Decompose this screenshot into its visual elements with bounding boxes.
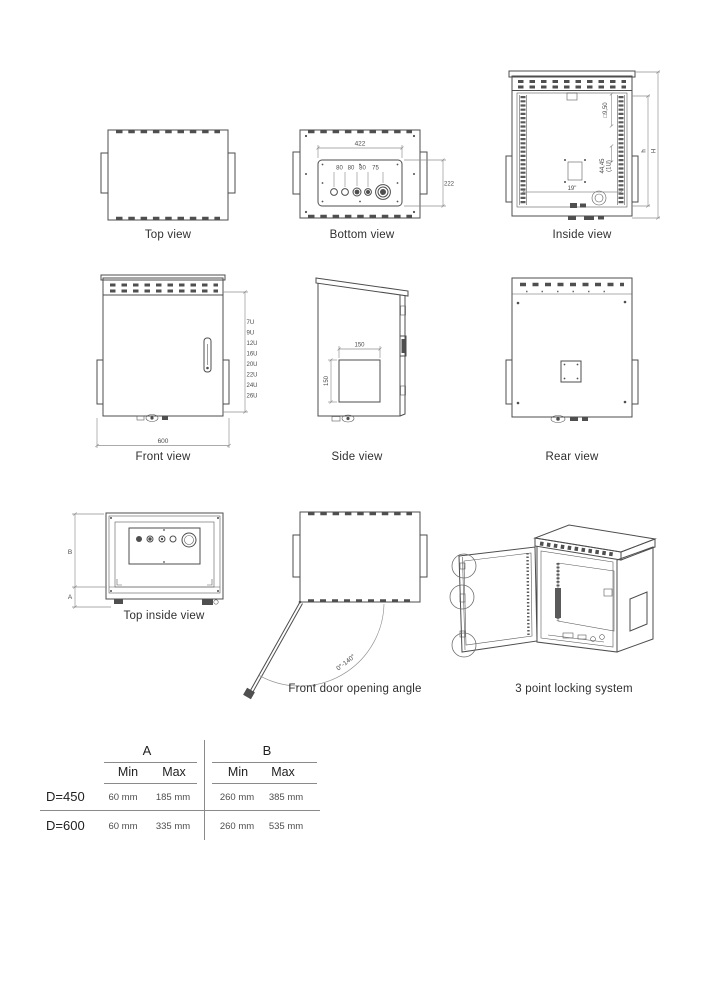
row-header-d600: D=600 xyxy=(46,818,85,833)
locking-system-panel xyxy=(438,493,670,683)
bottom-view-panel: 422 80 80 80 75 222 xyxy=(286,116,458,228)
top-view-panel xyxy=(96,116,241,228)
right-bracket xyxy=(420,535,427,577)
unit-size-label: 16U xyxy=(247,352,258,358)
inside-view-drawing: □9,50 44,45 (1U) 19" h xyxy=(496,60,674,222)
right-bracket xyxy=(228,153,235,193)
top-view-drawing xyxy=(96,116,241,228)
cell-d450-a-min: 60 mm xyxy=(108,792,137,803)
top-inside-view-drawing: B A xyxy=(56,498,246,628)
corner-mark-left xyxy=(117,579,122,585)
cell-d600-b-max: 535 mm xyxy=(269,821,303,832)
table-line-under-b xyxy=(212,762,317,763)
right-bracket xyxy=(632,360,638,404)
top-inside-view-panel: B A xyxy=(56,498,246,628)
inside-view-panel: □9,50 44,45 (1U) 19" h xyxy=(496,60,674,222)
dim-rack-units: 7U 9U 12U 16U 20U 22U 24U 26U xyxy=(223,291,258,414)
hinge-strip-holes xyxy=(528,553,529,636)
dim-label: h xyxy=(642,149,648,152)
dim-label-a: A xyxy=(68,594,73,601)
right-bracket xyxy=(632,156,638,202)
dim-label: 150 xyxy=(354,343,365,349)
roof xyxy=(535,525,655,560)
locking-system-caption: 3 point locking system xyxy=(515,683,633,695)
rear-gland-plate xyxy=(564,159,586,183)
dim-label: 222 xyxy=(444,182,455,188)
dim-unit-spacing: 44,45 (1U) xyxy=(600,145,613,174)
dim-label: 44,45 xyxy=(600,158,606,174)
door-angle-panel: 0°-140° xyxy=(234,498,439,705)
col-b-max: Max xyxy=(271,765,295,779)
cabinet-outline xyxy=(512,76,632,216)
inner-frame-2 xyxy=(115,522,214,587)
locking-system-drawing xyxy=(438,493,670,683)
right-bracket xyxy=(223,360,229,404)
opening-arc: 0°-140° xyxy=(259,604,384,686)
sloped-roof xyxy=(316,278,408,296)
left-bracket xyxy=(97,360,103,404)
inside-view-caption: Inside view xyxy=(552,229,611,241)
dim-label: 600 xyxy=(158,438,169,445)
side-view-drawing: 150 150 xyxy=(294,266,426,458)
hinge-bits xyxy=(114,599,218,605)
side-wall-plate xyxy=(604,589,612,596)
table-line-row-divider xyxy=(40,810,320,811)
unit-size-label: 24U xyxy=(247,383,258,389)
left-bracket xyxy=(506,156,512,202)
dim-label-b: B xyxy=(68,549,72,556)
cabinet-outline xyxy=(108,130,228,220)
unit-size-label: 12U xyxy=(247,341,258,347)
technical-drawing-sheet: Top view xyxy=(0,0,708,1000)
cabinet-outline xyxy=(106,513,223,599)
table-line-under-a xyxy=(104,762,197,763)
unit-size-label: 20U xyxy=(247,362,258,368)
left-bracket xyxy=(293,152,300,194)
cell-d600-b-min: 260 mm xyxy=(220,821,254,832)
col-group-b: B xyxy=(263,743,272,758)
cabinet-outline xyxy=(300,512,420,602)
table-line-under-minmax-b xyxy=(212,783,317,784)
rear-gland-plate xyxy=(561,361,581,382)
side-cutout xyxy=(339,360,380,402)
dim-label: 80 xyxy=(336,166,343,172)
cable-gland-holes xyxy=(331,185,391,200)
back-panel xyxy=(558,563,614,631)
rear-view-caption: Rear view xyxy=(546,451,599,463)
cell-d450-a-max: 185 mm xyxy=(156,792,190,803)
table-divider-vertical xyxy=(204,740,205,840)
dim-height-222: 222 xyxy=(404,159,455,208)
col-b-min: Min xyxy=(228,765,248,779)
col-a-min: Min xyxy=(118,765,138,779)
unit-size-label: 22U xyxy=(247,373,258,379)
cabinet-outline xyxy=(512,278,632,417)
cell-d450-b-max: 385 mm xyxy=(269,792,303,803)
dim-width-422: 422 xyxy=(317,141,404,159)
dim-label: 80 xyxy=(359,166,366,172)
col-group-a: A xyxy=(143,743,152,758)
door-handle-end xyxy=(243,688,255,699)
dim-cutout-height: 150 xyxy=(324,359,337,404)
top-bracket xyxy=(567,93,577,100)
unit-size-label: 26U xyxy=(247,394,258,400)
bottom-view-drawing: 422 80 80 80 75 222 xyxy=(286,116,458,228)
right-bracket xyxy=(420,152,427,194)
dim-label: 75 xyxy=(372,166,379,172)
side-view-panel: 150 150 xyxy=(294,266,426,458)
door-handle xyxy=(204,338,211,372)
left-bracket xyxy=(293,535,300,577)
front-view-panel: 7U 9U 12U 16U 20U 22U 24U 26U 600 xyxy=(82,266,260,454)
dim-label: (1U) xyxy=(607,160,613,172)
dim-hole-spacing: 80 80 80 75 xyxy=(334,166,383,188)
side-view-caption: Side view xyxy=(331,451,382,463)
door-angle-caption: Front door opening angle xyxy=(288,683,421,695)
dim-label: 19" xyxy=(568,186,577,192)
cell-d600-a-min: 60 mm xyxy=(108,821,137,832)
front-view-drawing: 7U 9U 12U 16U 20U 22U 24U 26U 600 xyxy=(82,266,260,454)
cell-d600-a-max: 335 mm xyxy=(156,821,190,832)
left-bracket xyxy=(101,153,108,193)
floor-items xyxy=(548,633,604,642)
dim-outer-height: H xyxy=(632,71,660,220)
dim-cutout-width: 150 xyxy=(338,343,382,359)
corner-screws xyxy=(517,301,627,405)
dim-label: 422 xyxy=(355,141,366,148)
unit-size-label: 9U xyxy=(247,331,255,337)
dim-rail-hole: □9,50 xyxy=(603,93,613,128)
top-view-caption: Top view xyxy=(145,229,191,241)
rear-view-panel xyxy=(496,266,648,458)
cabinet-outline xyxy=(103,278,223,416)
corner-mark-right xyxy=(207,579,212,585)
side-vent-window xyxy=(630,592,647,631)
left-bracket xyxy=(506,360,512,404)
dim-inner-height: h xyxy=(632,95,650,208)
dim-label: □9,50 xyxy=(603,102,609,118)
top-inside-view-caption: Top inside view xyxy=(124,610,205,622)
rear-view-drawing xyxy=(496,266,648,458)
unit-size-label: 7U xyxy=(247,320,255,326)
gland-plate xyxy=(129,528,200,564)
dim-width-600: 600 xyxy=(95,418,230,448)
front-view-caption: Front view xyxy=(135,451,190,463)
row-header-d450: D=450 xyxy=(46,789,85,804)
lock-bar xyxy=(463,557,466,650)
dim-label: 80 xyxy=(348,166,355,172)
angle-label: 0°-140° xyxy=(335,652,357,672)
body-outline xyxy=(318,284,400,417)
door-angle-drawing: 0°-140° xyxy=(234,498,439,705)
table-line-under-minmax-a xyxy=(104,783,197,784)
cell-d450-b-min: 260 mm xyxy=(220,792,254,803)
dimension-table: A B Min Max Min Max D=450 60 mm 185 mm 2… xyxy=(40,738,330,844)
dim-label: 150 xyxy=(324,375,330,386)
dim-b-a: B A xyxy=(68,513,111,609)
bottom-view-caption: Bottom view xyxy=(330,229,395,241)
dim-rack-width: 19" xyxy=(522,186,623,194)
lock-mechanism xyxy=(555,588,561,618)
open-door xyxy=(459,547,537,652)
dim-label: H xyxy=(652,149,658,153)
col-a-max: Max xyxy=(162,765,186,779)
cabinet-body xyxy=(537,546,653,652)
